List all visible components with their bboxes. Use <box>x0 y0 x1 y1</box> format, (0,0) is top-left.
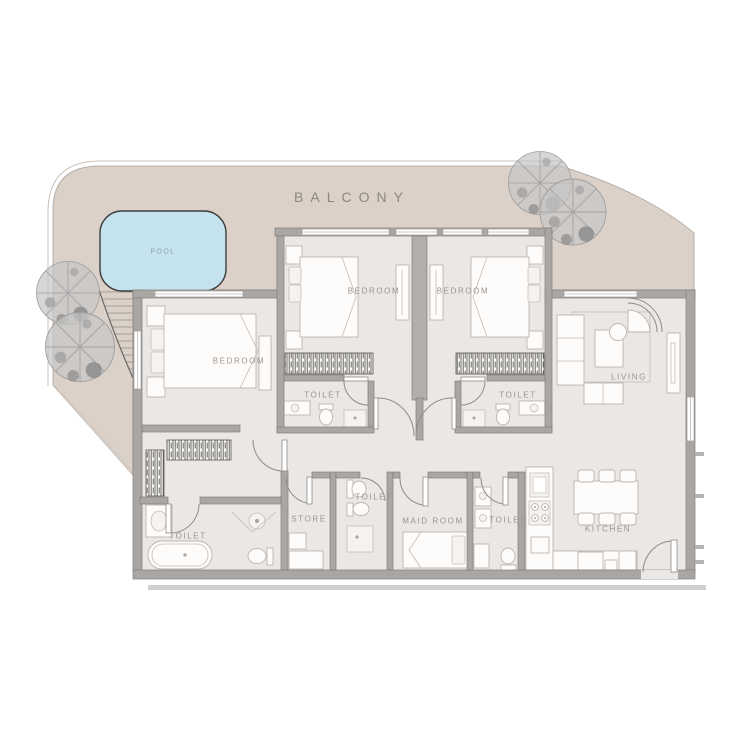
floor-plan: BALCONY POOL BEDROOM BEDROOM BEDROOM TOI… <box>0 0 750 750</box>
pillow <box>151 329 164 350</box>
side-table-icon <box>610 324 627 341</box>
double-bed-icon <box>471 257 529 337</box>
toilet-master-label: TOILET <box>169 532 206 541</box>
fridge-icon <box>578 552 603 570</box>
wc-icon <box>501 548 515 564</box>
door-leaf <box>344 377 368 381</box>
sofa-icon <box>584 383 623 404</box>
wardrobe-icon <box>167 440 231 460</box>
wc-icon <box>497 409 510 425</box>
appliance <box>605 560 617 570</box>
pillow <box>151 352 164 373</box>
tree-icon <box>46 313 115 382</box>
bedroom-3-label: BEDROOM <box>437 287 490 296</box>
toilet-3-label: TOILET <box>499 391 536 400</box>
pillow <box>528 267 540 284</box>
chair-icon <box>599 513 615 525</box>
door-leaf <box>166 504 171 533</box>
bedroom-master-label: BEDROOM <box>213 357 266 366</box>
nightstand <box>147 306 165 326</box>
pillow <box>289 267 301 284</box>
cabinet <box>474 544 489 568</box>
maid-room-label: MAID ROOM <box>402 517 464 526</box>
toilet-guest-label: TOILET <box>489 516 526 525</box>
wall-tick <box>695 560 704 564</box>
pool-label: POOL <box>150 249 175 256</box>
dining-table-icon <box>574 481 638 514</box>
tv-unit-icon <box>667 333 680 393</box>
chair-icon <box>620 513 636 525</box>
wc-icon <box>353 503 369 516</box>
pillow <box>289 285 301 302</box>
wc-icon <box>267 548 273 565</box>
door-leaf <box>374 398 378 429</box>
chair-icon <box>599 470 615 482</box>
chair-icon <box>620 470 636 482</box>
chair-icon <box>578 470 594 482</box>
wc-icon <box>320 409 333 425</box>
bedroom-2-label: BEDROOM <box>348 287 401 296</box>
appliance <box>619 551 636 570</box>
sofa-icon <box>557 315 584 385</box>
door-leaf <box>282 440 287 471</box>
wall-tick <box>695 545 704 549</box>
wall-tick <box>695 452 704 456</box>
living-label: LIVING <box>611 373 647 382</box>
pillow <box>528 285 540 302</box>
kitchen-label: KITCHEN <box>585 525 631 534</box>
pillow <box>452 536 465 564</box>
wc-icon <box>248 549 266 564</box>
door-leaf <box>503 477 508 505</box>
door-leaf <box>461 377 485 381</box>
double-bed-icon <box>164 314 256 388</box>
cabinet <box>531 537 549 553</box>
store-label: STORE <box>291 515 326 524</box>
wall-tick <box>695 494 704 498</box>
wardrobe-icon <box>285 353 373 374</box>
double-bed-icon <box>300 257 358 337</box>
shelf <box>289 533 306 549</box>
balcony-label: BALCONY <box>294 189 410 205</box>
nightstand <box>147 377 165 397</box>
wardrobe-icon <box>146 450 164 496</box>
shelf <box>289 551 323 569</box>
toilet-mid-label: TOILET <box>355 493 392 502</box>
wc-icon <box>347 503 353 516</box>
outer-trim <box>148 585 706 590</box>
shower-icon <box>347 526 373 552</box>
door-leaf <box>423 477 428 506</box>
wardrobe-icon <box>456 353 544 374</box>
door-leaf <box>307 477 312 504</box>
chair-icon <box>578 513 594 525</box>
door-leaf <box>452 398 456 429</box>
toilet-2-label: TOILET <box>304 391 341 400</box>
door-leaf <box>671 540 677 572</box>
